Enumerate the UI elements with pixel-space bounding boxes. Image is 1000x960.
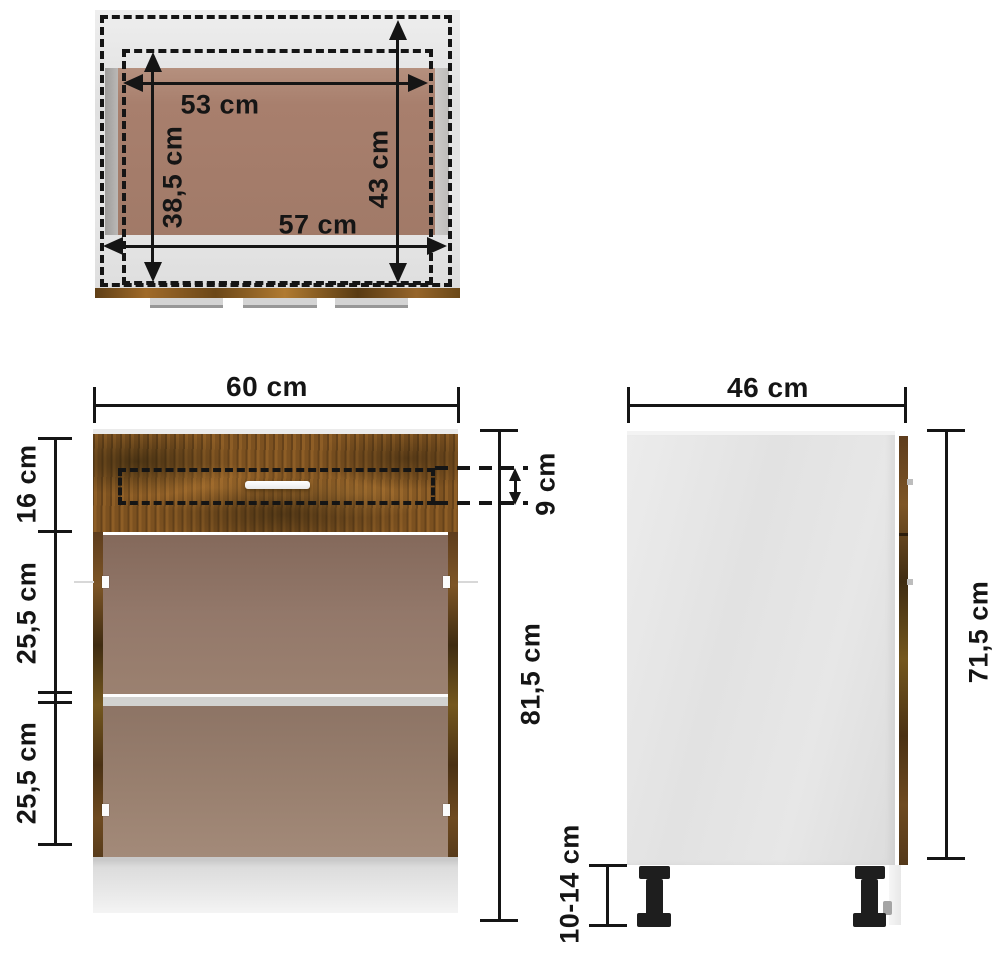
cabinet-leg-rear-stem [861,879,878,915]
dim-tick-right [457,387,460,423]
bracket-cap [38,530,72,533]
bracket-cap [38,691,72,694]
top-view-drawer-front-edge [95,288,460,298]
dim-label-top-inner-depth: 38,5 cm [158,126,189,229]
side-hinge-mark-lower [907,579,913,585]
shelf [103,694,448,706]
upper-compartment-interior [103,535,448,694]
side-door-edge [899,436,908,865]
cabinet-leg-front-stem [646,879,663,915]
plinth-base [93,857,458,913]
dim-label-lower-section: 25,5 cm [12,722,43,825]
bracket-cap [927,857,965,860]
dim-label-top-outer-depth: 43 cm [364,129,395,208]
dim-label-upper-section: 25,5 cm [12,562,43,665]
dim-line-front-width [93,404,460,407]
dim-label-side-depth: 46 cm [727,372,809,404]
cabinet-leg-front-flange [639,866,670,879]
top-view-rail-tab-1 [150,298,223,308]
side-hinge-mark-upper [907,479,913,485]
side-door-bottom-strip [889,865,901,925]
bracket-cap [589,924,627,927]
cabinet-leg-rear-flange [855,866,885,879]
top-view-rail-tab-2 [243,298,317,308]
hinge-upper-left [102,576,109,588]
dim-tick-left [93,387,96,423]
hinge-lower-right [443,804,450,816]
bracket-cap [38,701,72,704]
hinge-mark-line-right [458,581,478,583]
hinge-mark-line-left [74,581,94,583]
drawer-dash-extension-bottom [435,501,528,505]
dim-label-drawer-slot-height: 9 cm [531,452,562,516]
dim-label-legs-height: 10-14 cm [555,824,586,944]
drawer-dash-extension-top [435,466,528,470]
dim-tick-right [904,387,907,423]
bracket-cap [38,437,72,440]
bracket-line-carcass-height [945,429,948,860]
lower-compartment-interior [103,706,448,857]
cabinet-dimension-diagram: 53 cm 38,5 cm 43 cm 57 cm 60 cm [0,0,1000,960]
top-view-rail-tab-3 [335,298,408,308]
bracket-line-legs [606,864,609,927]
cabinet-leg-front-foot [637,913,671,927]
side-door-edge-joint [899,533,908,536]
bracket-cap [480,429,518,432]
dim-label-carcass-height: 71,5 cm [964,581,995,684]
bracket-cap [38,843,72,846]
dim-label-front-width: 60 cm [226,371,308,403]
dim-label-top-outer-width: 57 cm [278,210,357,241]
dim-tick-left [627,387,630,423]
bracket-line-left [54,437,57,845]
dim-label-total-height: 81,5 cm [516,623,547,726]
hinge-lower-left [102,804,109,816]
dim-line-side-depth [627,404,907,407]
hinge-upper-right [443,576,450,588]
dim-label-drawer-front-height: 16 cm [12,444,43,523]
drawer-box-dashed-outline [118,468,435,505]
bracket-cap [927,429,965,432]
side-panel-body [627,431,895,865]
dim-label-top-inner-width: 53 cm [180,90,259,121]
cabinet-leg-rear-foot [853,913,886,927]
bracket-cap [480,919,518,922]
bracket-cap [589,864,627,867]
